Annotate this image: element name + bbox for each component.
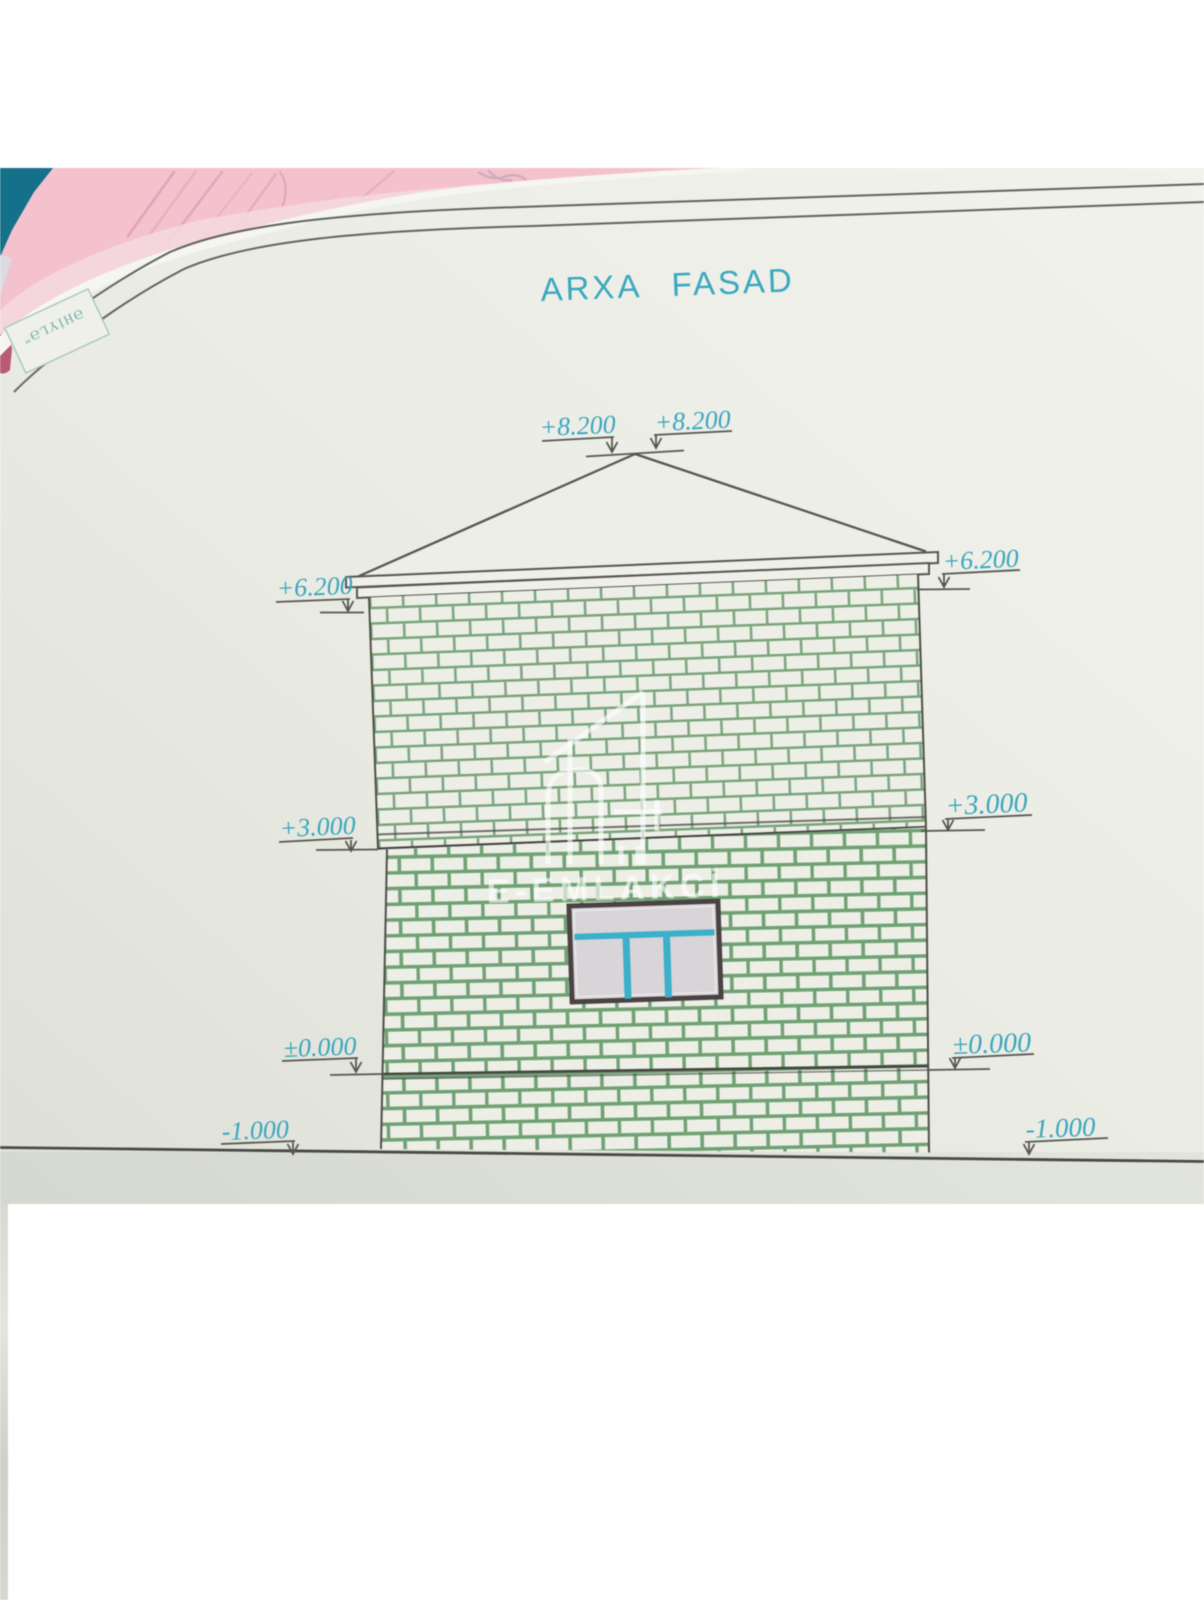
svg-text:FASAD: FASAD (671, 261, 796, 303)
svg-text:ARXA: ARXA (540, 267, 643, 308)
svg-text:+6.200: +6.200 (276, 571, 353, 603)
svg-text:E-EMLAKCİ: E-EMLAKCİ (486, 867, 725, 911)
